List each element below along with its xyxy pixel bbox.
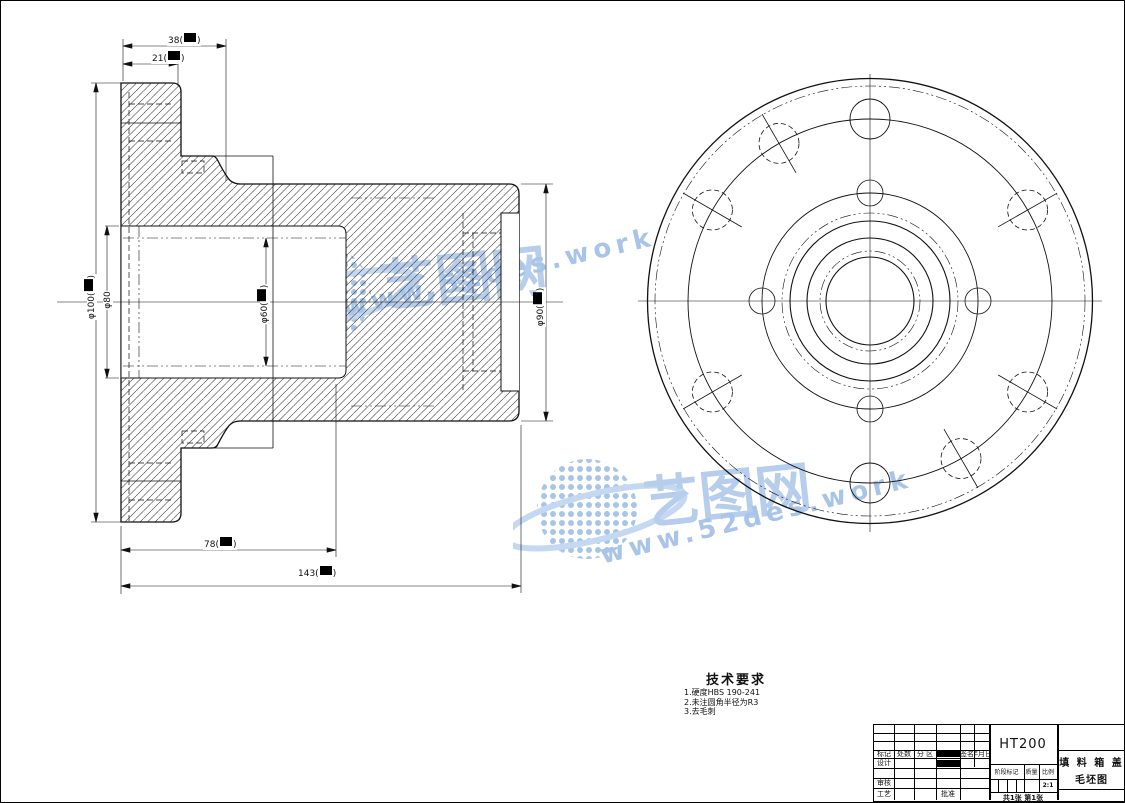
- section-view: [57, 39, 563, 594]
- tb-label-count: 处数: [894, 750, 914, 758]
- tb-scale-value: 2:1: [1039, 779, 1057, 792]
- dim-label-38: 38(): [167, 36, 201, 46]
- tech-requirement-item: 3.去毛刺: [684, 707, 816, 717]
- cad-linework: [1, 1, 1125, 803]
- dim-label-78: 78(): [203, 540, 237, 550]
- tb-label-date: 年月日: [974, 750, 989, 758]
- redacted-tolerance: [184, 33, 196, 42]
- redacted-tolerance: [84, 279, 93, 291]
- tb-sheet-info: 共1张 第1张: [989, 792, 1057, 803]
- tb-drawing-type: 毛坯图: [1057, 769, 1125, 787]
- tb-label-review: 审核: [874, 778, 894, 788]
- dim-label-d90: φ90(): [536, 287, 546, 327]
- tech-requirements-title: 技术要求: [656, 669, 816, 688]
- tb-label-approve: 批准: [936, 788, 960, 800]
- dim-label-d60: φ60(): [260, 284, 270, 324]
- dim-label-21: 21(): [151, 54, 185, 64]
- drawing-sheet: 艺图网 www.52des.work 艺图网 www.52des.work: [0, 0, 1125, 803]
- front-view-centerlines: [638, 74, 1102, 532]
- tb-label-scale: 比例: [1039, 764, 1057, 779]
- tb-label-process: 工艺: [874, 788, 894, 800]
- front-view: [638, 74, 1102, 532]
- tech-requirement-item: 2.未注圆角半径为R3: [684, 698, 816, 708]
- tb-part-name: 填 料 箱 盖: [1057, 752, 1125, 770]
- tb-label-design: 设计: [874, 758, 894, 768]
- dim-label-d100: φ100(): [87, 274, 97, 320]
- tech-requirements: 技术要求 1.硬度HBS 190-241 2.未注圆角半径为R3 3.去毛刺: [656, 669, 816, 717]
- redacted-tolerance: [533, 292, 542, 304]
- tb-label-mark: 标记: [874, 750, 894, 758]
- redacted-tolerance: [168, 51, 180, 60]
- dim-label-d80: φ80: [103, 290, 113, 309]
- redacted-field: [937, 760, 960, 767]
- redacted-tolerance: [220, 537, 232, 546]
- tb-label-weight: 质量: [1024, 764, 1039, 779]
- redacted-field: [937, 751, 960, 757]
- title-block: 标记 处数 分 区 签名 年月日 设计 审核 工艺 批准 HT200 阶段标记 …: [873, 724, 1125, 802]
- tb-material: HT200: [989, 725, 1057, 764]
- dim-label-143: 143(): [297, 569, 337, 579]
- redacted-tolerance: [320, 566, 332, 575]
- tb-label-zone: 分 区: [914, 750, 936, 758]
- tech-requirement-item: 1.硬度HBS 190-241: [684, 688, 816, 698]
- tb-label-stage-mark: 阶段标记: [989, 764, 1024, 779]
- redacted-tolerance: [257, 289, 266, 301]
- tb-label-sign: 签名: [960, 750, 974, 758]
